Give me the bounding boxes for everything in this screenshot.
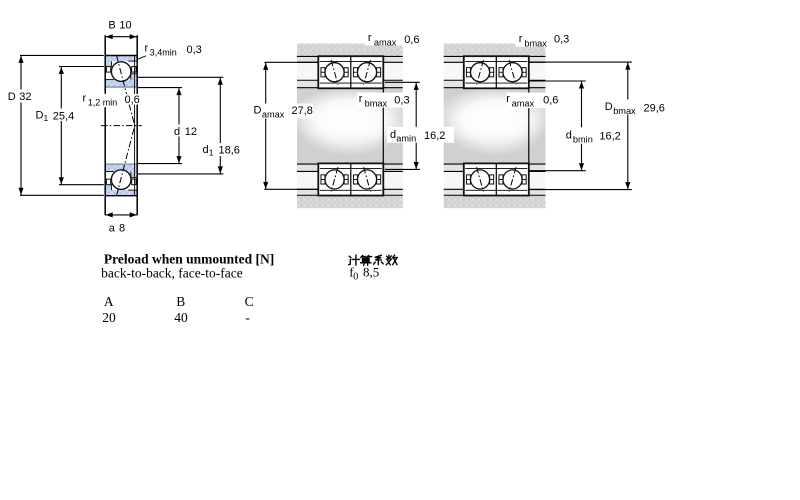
svg-text:0,6: 0,6: [543, 95, 558, 107]
svg-text:-: -: [245, 310, 250, 325]
svg-text:D: D: [254, 105, 262, 117]
svg-text:29,6: 29,6: [644, 102, 665, 114]
svg-text:8: 8: [119, 223, 125, 235]
svg-text:amin: amin: [396, 133, 416, 143]
svg-text:r: r: [83, 93, 87, 105]
svg-text:Preload when unmounted [N]: Preload when unmounted [N]: [104, 252, 274, 267]
svg-text:amax: amax: [374, 38, 397, 48]
svg-text:a: a: [109, 223, 116, 235]
svg-text:12: 12: [185, 126, 197, 138]
svg-text:32: 32: [19, 91, 31, 103]
svg-text:0,3: 0,3: [187, 44, 202, 56]
svg-text:bmax: bmax: [365, 98, 388, 108]
svg-text:16,2: 16,2: [424, 130, 445, 142]
svg-text:10: 10: [119, 20, 131, 32]
svg-text:d: d: [390, 129, 396, 141]
svg-text:40: 40: [174, 310, 188, 325]
svg-text:bmax: bmax: [613, 106, 636, 116]
svg-text:C: C: [245, 294, 254, 309]
svg-text:back-to-back, face-to-face: back-to-back, face-to-face: [101, 266, 243, 281]
svg-text:20: 20: [102, 310, 116, 325]
svg-text:d: d: [566, 129, 572, 141]
svg-text:0,3: 0,3: [394, 95, 409, 107]
svg-text:1: 1: [44, 113, 49, 123]
svg-text:0,6: 0,6: [404, 34, 419, 46]
svg-text:18,6: 18,6: [219, 145, 240, 157]
svg-text:r: r: [519, 33, 523, 45]
svg-text:d: d: [203, 144, 209, 156]
svg-text:25,4: 25,4: [53, 110, 74, 122]
svg-text:B: B: [176, 294, 185, 309]
svg-text:r: r: [506, 93, 510, 105]
svg-text:0,3: 0,3: [554, 34, 569, 46]
svg-text:A: A: [104, 294, 114, 309]
svg-text:0: 0: [353, 272, 358, 283]
svg-text:16,2: 16,2: [599, 131, 620, 143]
svg-text:B: B: [108, 20, 115, 32]
svg-text:bmax: bmax: [524, 38, 547, 48]
svg-text:D: D: [605, 101, 613, 113]
svg-text:0,6: 0,6: [125, 94, 140, 106]
svg-text:amax: amax: [262, 109, 285, 119]
svg-text:d: d: [174, 126, 180, 138]
svg-text:8,5: 8,5: [363, 265, 379, 280]
svg-text:r: r: [368, 32, 372, 44]
svg-text:1,2 min: 1,2 min: [88, 98, 118, 108]
svg-text:3,4min: 3,4min: [150, 48, 177, 58]
svg-text:1: 1: [209, 148, 214, 158]
svg-text:D: D: [8, 91, 16, 103]
svg-text:amax: amax: [512, 98, 535, 108]
svg-text:27,8: 27,8: [292, 105, 313, 117]
svg-text:D: D: [36, 110, 44, 122]
svg-text:bmin: bmin: [573, 134, 593, 144]
svg-text:r: r: [359, 93, 363, 105]
svg-text:r: r: [145, 43, 149, 55]
